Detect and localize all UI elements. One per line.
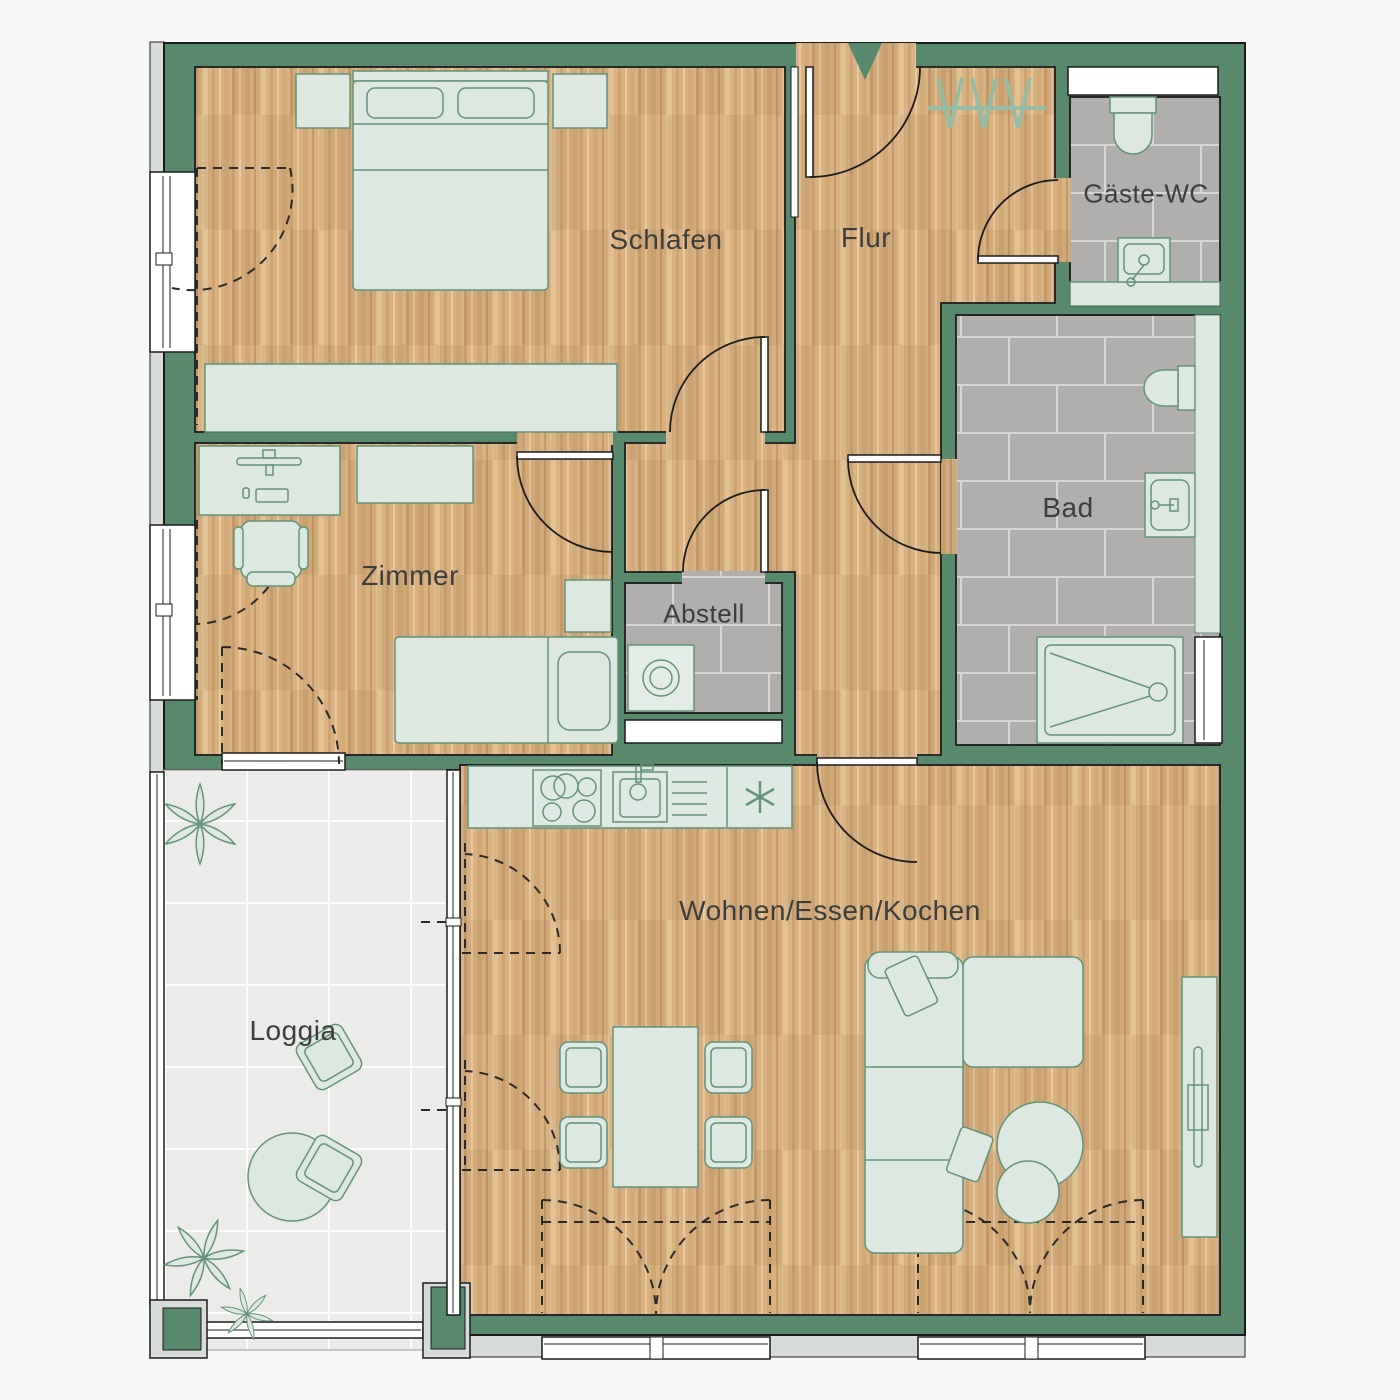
room-wohnen-floor bbox=[460, 765, 1220, 1315]
bad-ledge bbox=[1195, 315, 1220, 633]
kitchen-counter bbox=[468, 764, 792, 828]
label-gaeste-wc: Gäste-WC bbox=[1083, 179, 1208, 210]
window-bad bbox=[1195, 637, 1222, 743]
door-schlafen-leaf bbox=[761, 337, 768, 432]
door-gaeste-wc-leaf bbox=[978, 256, 1058, 263]
label-flur: Flur bbox=[841, 222, 891, 254]
gaeste-wc-sink-icon bbox=[1118, 238, 1170, 286]
dining-table bbox=[613, 1027, 698, 1187]
shaft-gaeste-wc bbox=[1068, 67, 1218, 95]
abstell-door-opening bbox=[682, 571, 765, 584]
zimmer-nightstand bbox=[565, 580, 611, 632]
door-abstell-leaf bbox=[761, 490, 768, 572]
desk bbox=[199, 446, 340, 515]
label-loggia: Loggia bbox=[249, 1015, 336, 1047]
gaeste-wc-toilet-icon bbox=[1110, 97, 1156, 154]
floor-plan-svg bbox=[0, 0, 1400, 1400]
label-zimmer: Zimmer bbox=[361, 560, 459, 592]
door-bad-leaf bbox=[848, 455, 941, 462]
wardrobe bbox=[205, 364, 617, 432]
tv-sideboard bbox=[1182, 977, 1217, 1237]
label-wohnen-essen-kochen: Wohnen/Essen/Kochen bbox=[679, 895, 981, 927]
single-bed bbox=[395, 637, 618, 743]
nightstand-left bbox=[296, 74, 350, 128]
nightstand-right bbox=[553, 74, 607, 128]
shaft-abstell bbox=[625, 720, 782, 743]
coffee-table-small bbox=[997, 1161, 1059, 1223]
bad-sink-icon bbox=[1145, 473, 1195, 537]
label-schlafen: Schlafen bbox=[610, 224, 723, 256]
washing-machine-icon bbox=[628, 645, 694, 711]
door-wohnen-leaf bbox=[817, 758, 917, 765]
door-zimmer-leaf bbox=[517, 452, 613, 459]
desk-chair bbox=[234, 521, 308, 586]
double-bed bbox=[353, 71, 548, 290]
gaeste-wc-counter bbox=[1070, 282, 1220, 306]
bad-shower-icon bbox=[1037, 637, 1183, 743]
label-abstell: Abstell bbox=[663, 599, 745, 630]
zimmer-shelf bbox=[357, 446, 473, 503]
door-entrance-leaf bbox=[806, 67, 813, 177]
entrance-frame bbox=[791, 67, 798, 217]
label-bad: Bad bbox=[1042, 492, 1093, 524]
floor-plan: Schlafen Flur Gäste-WC Bad Zimmer Abstel… bbox=[0, 0, 1400, 1400]
